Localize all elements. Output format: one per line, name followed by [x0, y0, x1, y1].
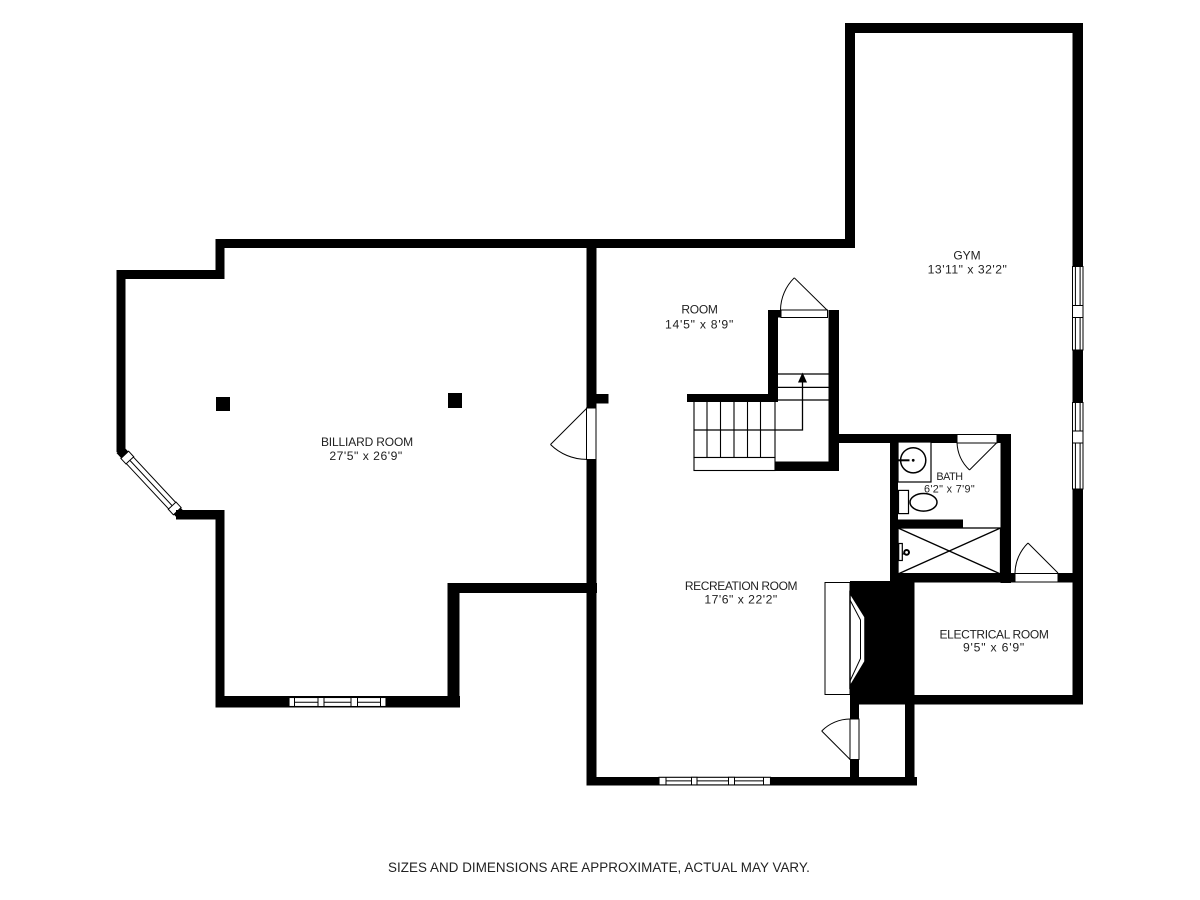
svg-text:6'2" x 7'9": 6'2" x 7'9" — [924, 484, 975, 496]
svg-text:RECREATION ROOM: RECREATION ROOM — [685, 579, 798, 593]
svg-text:GYM: GYM — [953, 249, 980, 263]
svg-text:SIZES AND DIMENSIONS ARE APPRO: SIZES AND DIMENSIONS ARE APPROXIMATE, AC… — [388, 860, 810, 875]
svg-text:27'5" x 26'9": 27'5" x 26'9" — [329, 449, 402, 463]
svg-text:ROOM: ROOM — [681, 303, 717, 317]
svg-text:9'5" x 6'9": 9'5" x 6'9" — [963, 641, 1025, 655]
svg-text:BATH: BATH — [936, 471, 962, 483]
svg-text:BILLIARD ROOM: BILLIARD ROOM — [321, 435, 413, 449]
svg-text:13'11" x 32'2": 13'11" x 32'2" — [928, 262, 1008, 276]
svg-text:14'5" x 8'9": 14'5" x 8'9" — [665, 318, 734, 332]
svg-text:17'6" x 22'2": 17'6" x 22'2" — [704, 593, 777, 607]
svg-text:ELECTRICAL ROOM: ELECTRICAL ROOM — [940, 628, 1049, 642]
